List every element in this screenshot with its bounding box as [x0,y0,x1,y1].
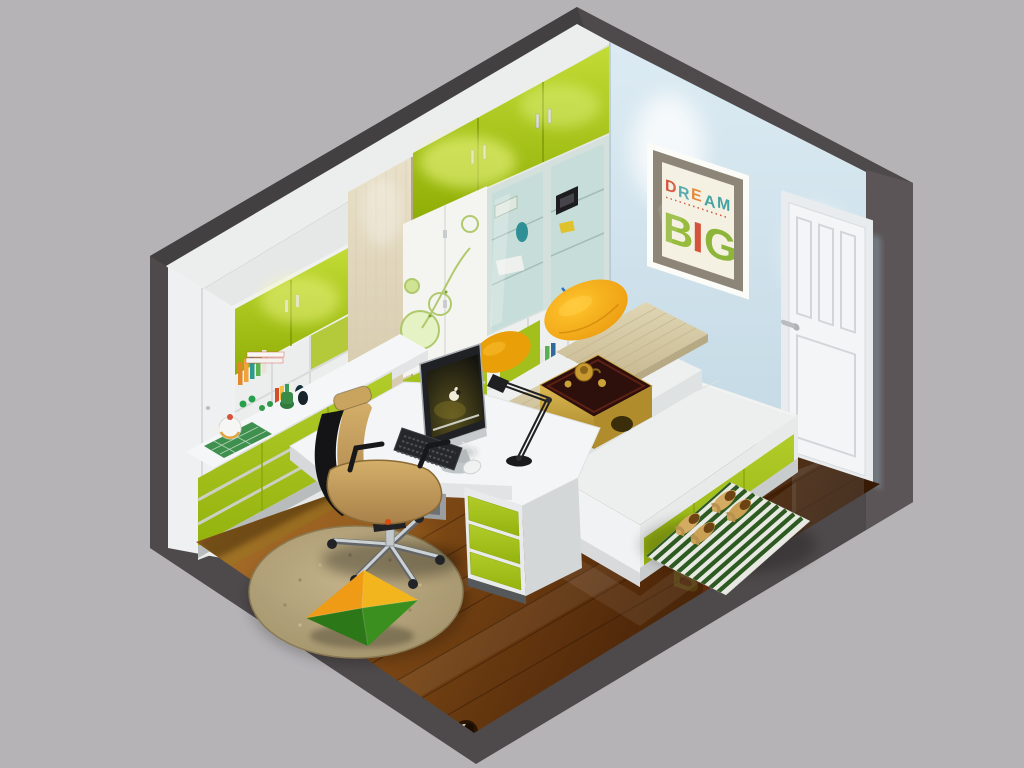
screenshot-root: D R E A M B I G [0,0,1024,768]
room-render: D R E A M B I G [0,0,1024,768]
poster-letter: I [692,213,704,264]
vase [516,222,528,242]
black-cup [298,391,308,405]
chair-seat [327,460,441,524]
